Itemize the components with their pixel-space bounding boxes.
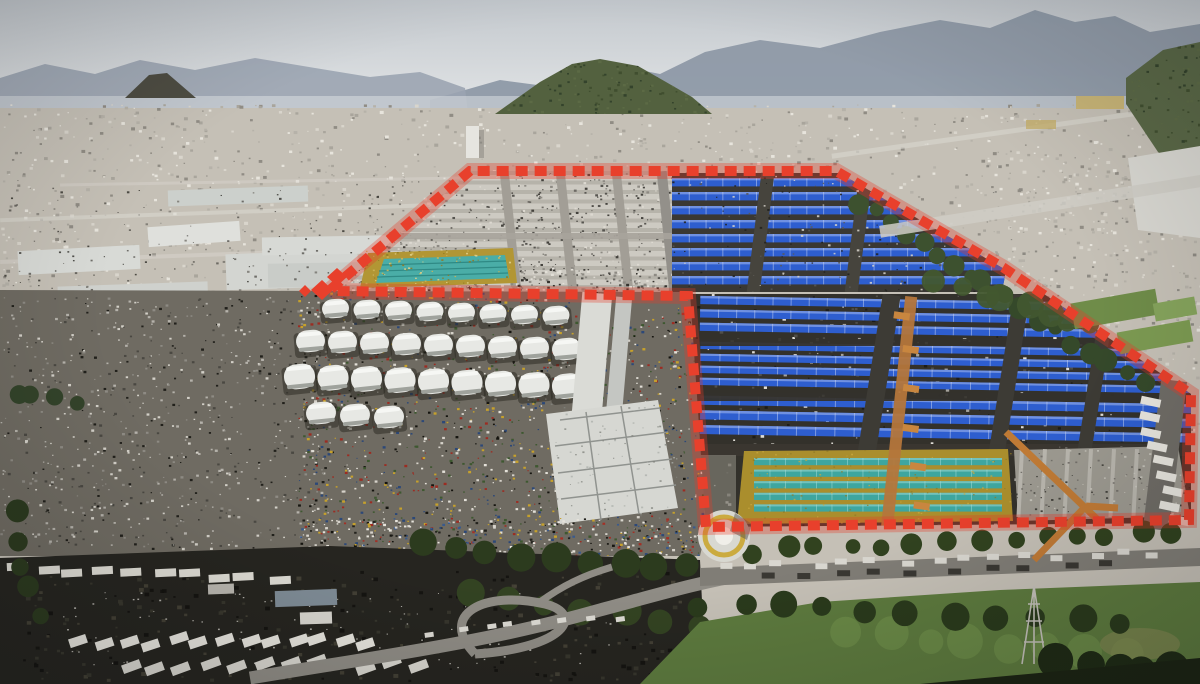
vignette: [0, 0, 1200, 684]
aerial-photo-screenshot: [0, 0, 1200, 684]
aerial-photo-canvas: [0, 0, 1200, 684]
